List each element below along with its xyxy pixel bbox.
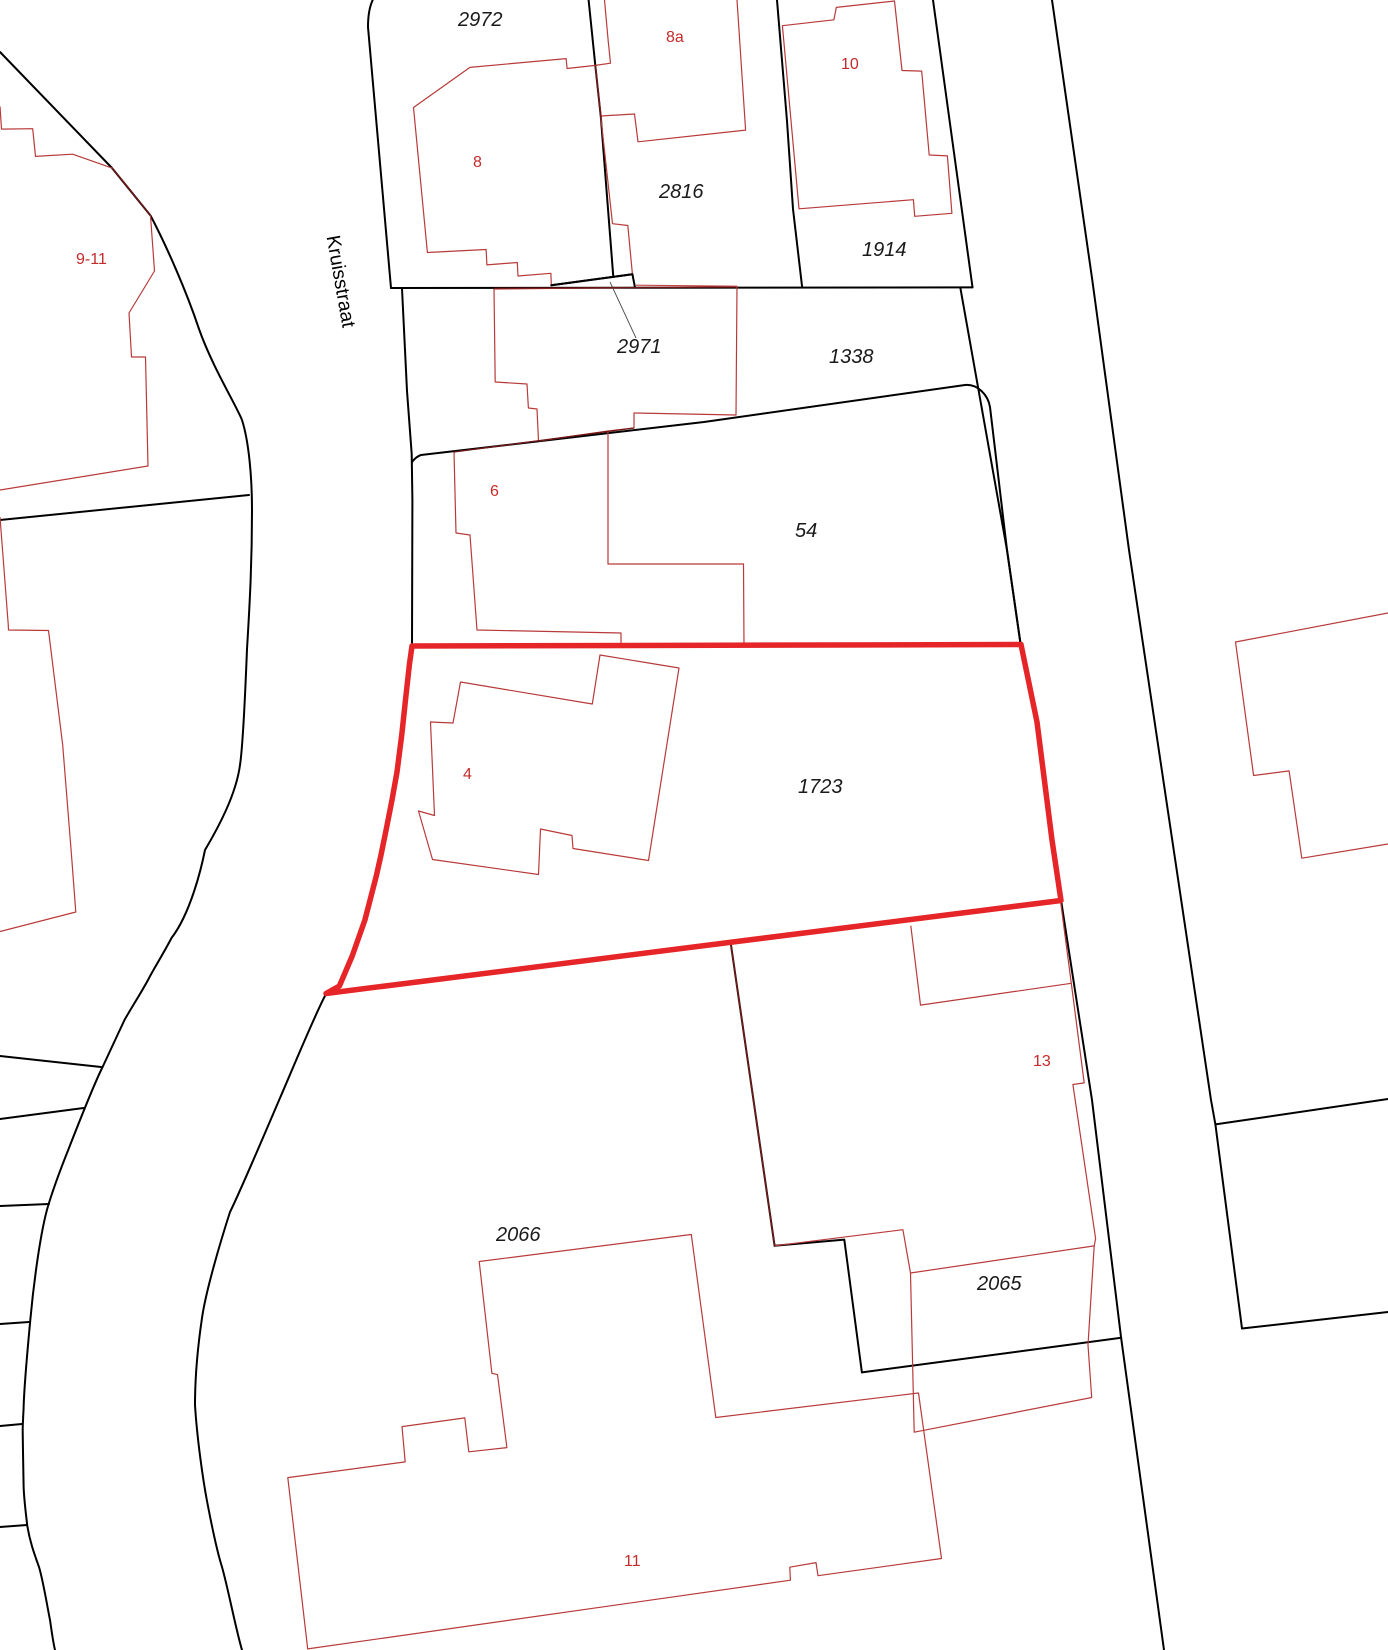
svg-text:9-11: 9-11 bbox=[76, 251, 107, 268]
svg-text:11: 11 bbox=[624, 1553, 641, 1570]
svg-text:2065: 2065 bbox=[976, 1273, 1022, 1295]
svg-text:2971: 2971 bbox=[616, 336, 662, 358]
svg-text:2066: 2066 bbox=[495, 1224, 541, 1246]
svg-text:54: 54 bbox=[795, 520, 817, 542]
svg-text:10: 10 bbox=[841, 56, 859, 73]
svg-text:13: 13 bbox=[1033, 1053, 1051, 1070]
svg-text:8a: 8a bbox=[666, 29, 684, 46]
svg-text:2972: 2972 bbox=[457, 9, 503, 31]
svg-text:6: 6 bbox=[490, 483, 499, 500]
svg-text:2816: 2816 bbox=[658, 181, 704, 203]
svg-text:1723: 1723 bbox=[798, 776, 843, 798]
svg-text:1338: 1338 bbox=[829, 346, 874, 368]
svg-text:4: 4 bbox=[463, 766, 472, 783]
svg-text:1914: 1914 bbox=[862, 239, 907, 261]
svg-text:8: 8 bbox=[473, 154, 482, 171]
